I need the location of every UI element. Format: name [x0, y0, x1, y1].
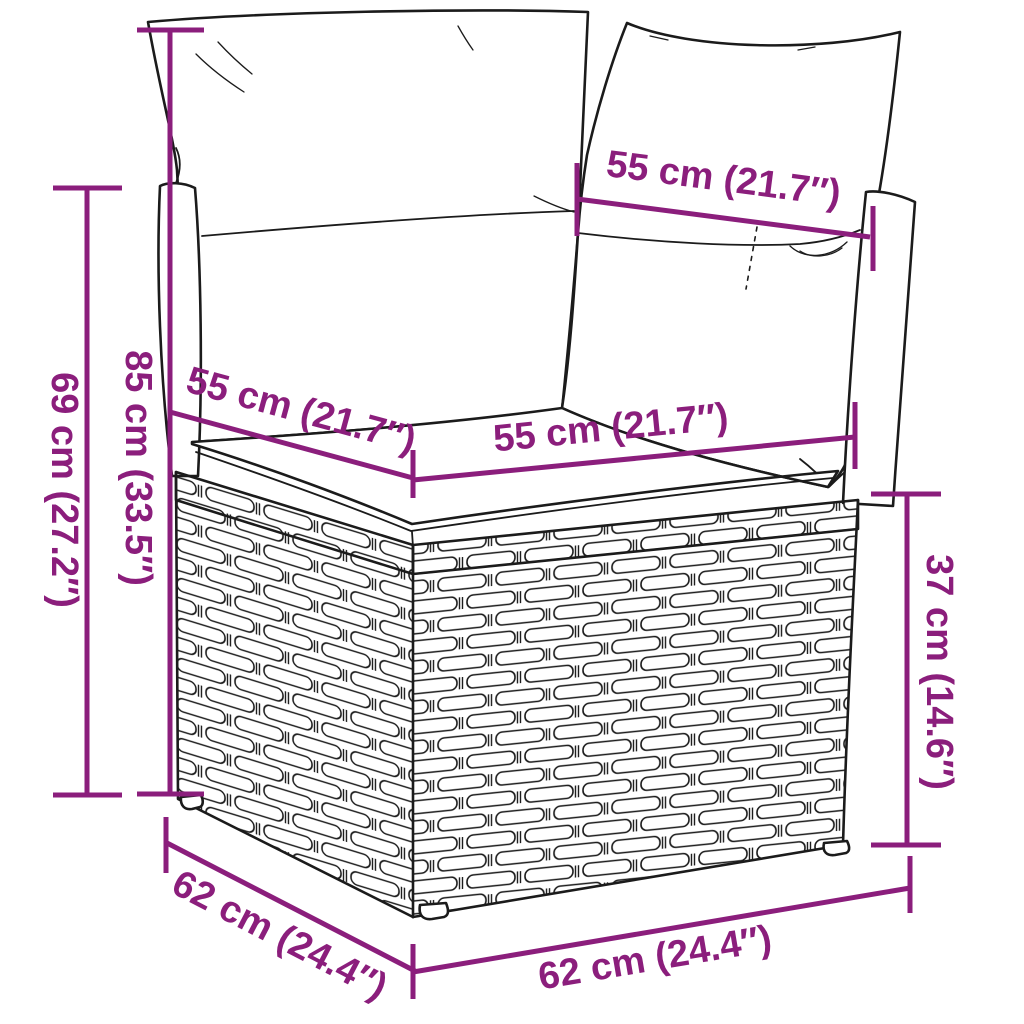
dimension-label-seat-height: 37 cm (14.6″) — [918, 554, 960, 790]
dimension-seat-height: 37 cm (14.6″) — [871, 494, 960, 845]
sofa-drawing — [148, 10, 915, 919]
foot — [420, 903, 448, 919]
wicker-base — [176, 472, 858, 919]
foot — [181, 795, 203, 809]
base-left-face — [176, 472, 413, 917]
dimension-label-height-total: 85 cm (33.5″) — [117, 350, 159, 586]
screenshot-canvas: 55 cm (21.7″) 69 cm (27.2″) 85 cm (33.5″… — [0, 0, 1024, 1024]
product-dimension-diagram: 55 cm (21.7″) 69 cm (27.2″) 85 cm (33.5″… — [0, 0, 1024, 1024]
left-corner-post — [159, 148, 201, 476]
dimension-label-height-back: 69 cm (27.2″) — [43, 372, 85, 608]
dimension-height-back: 69 cm (27.2″) — [43, 188, 122, 795]
base-front-face — [413, 500, 858, 917]
foot — [824, 841, 850, 855]
